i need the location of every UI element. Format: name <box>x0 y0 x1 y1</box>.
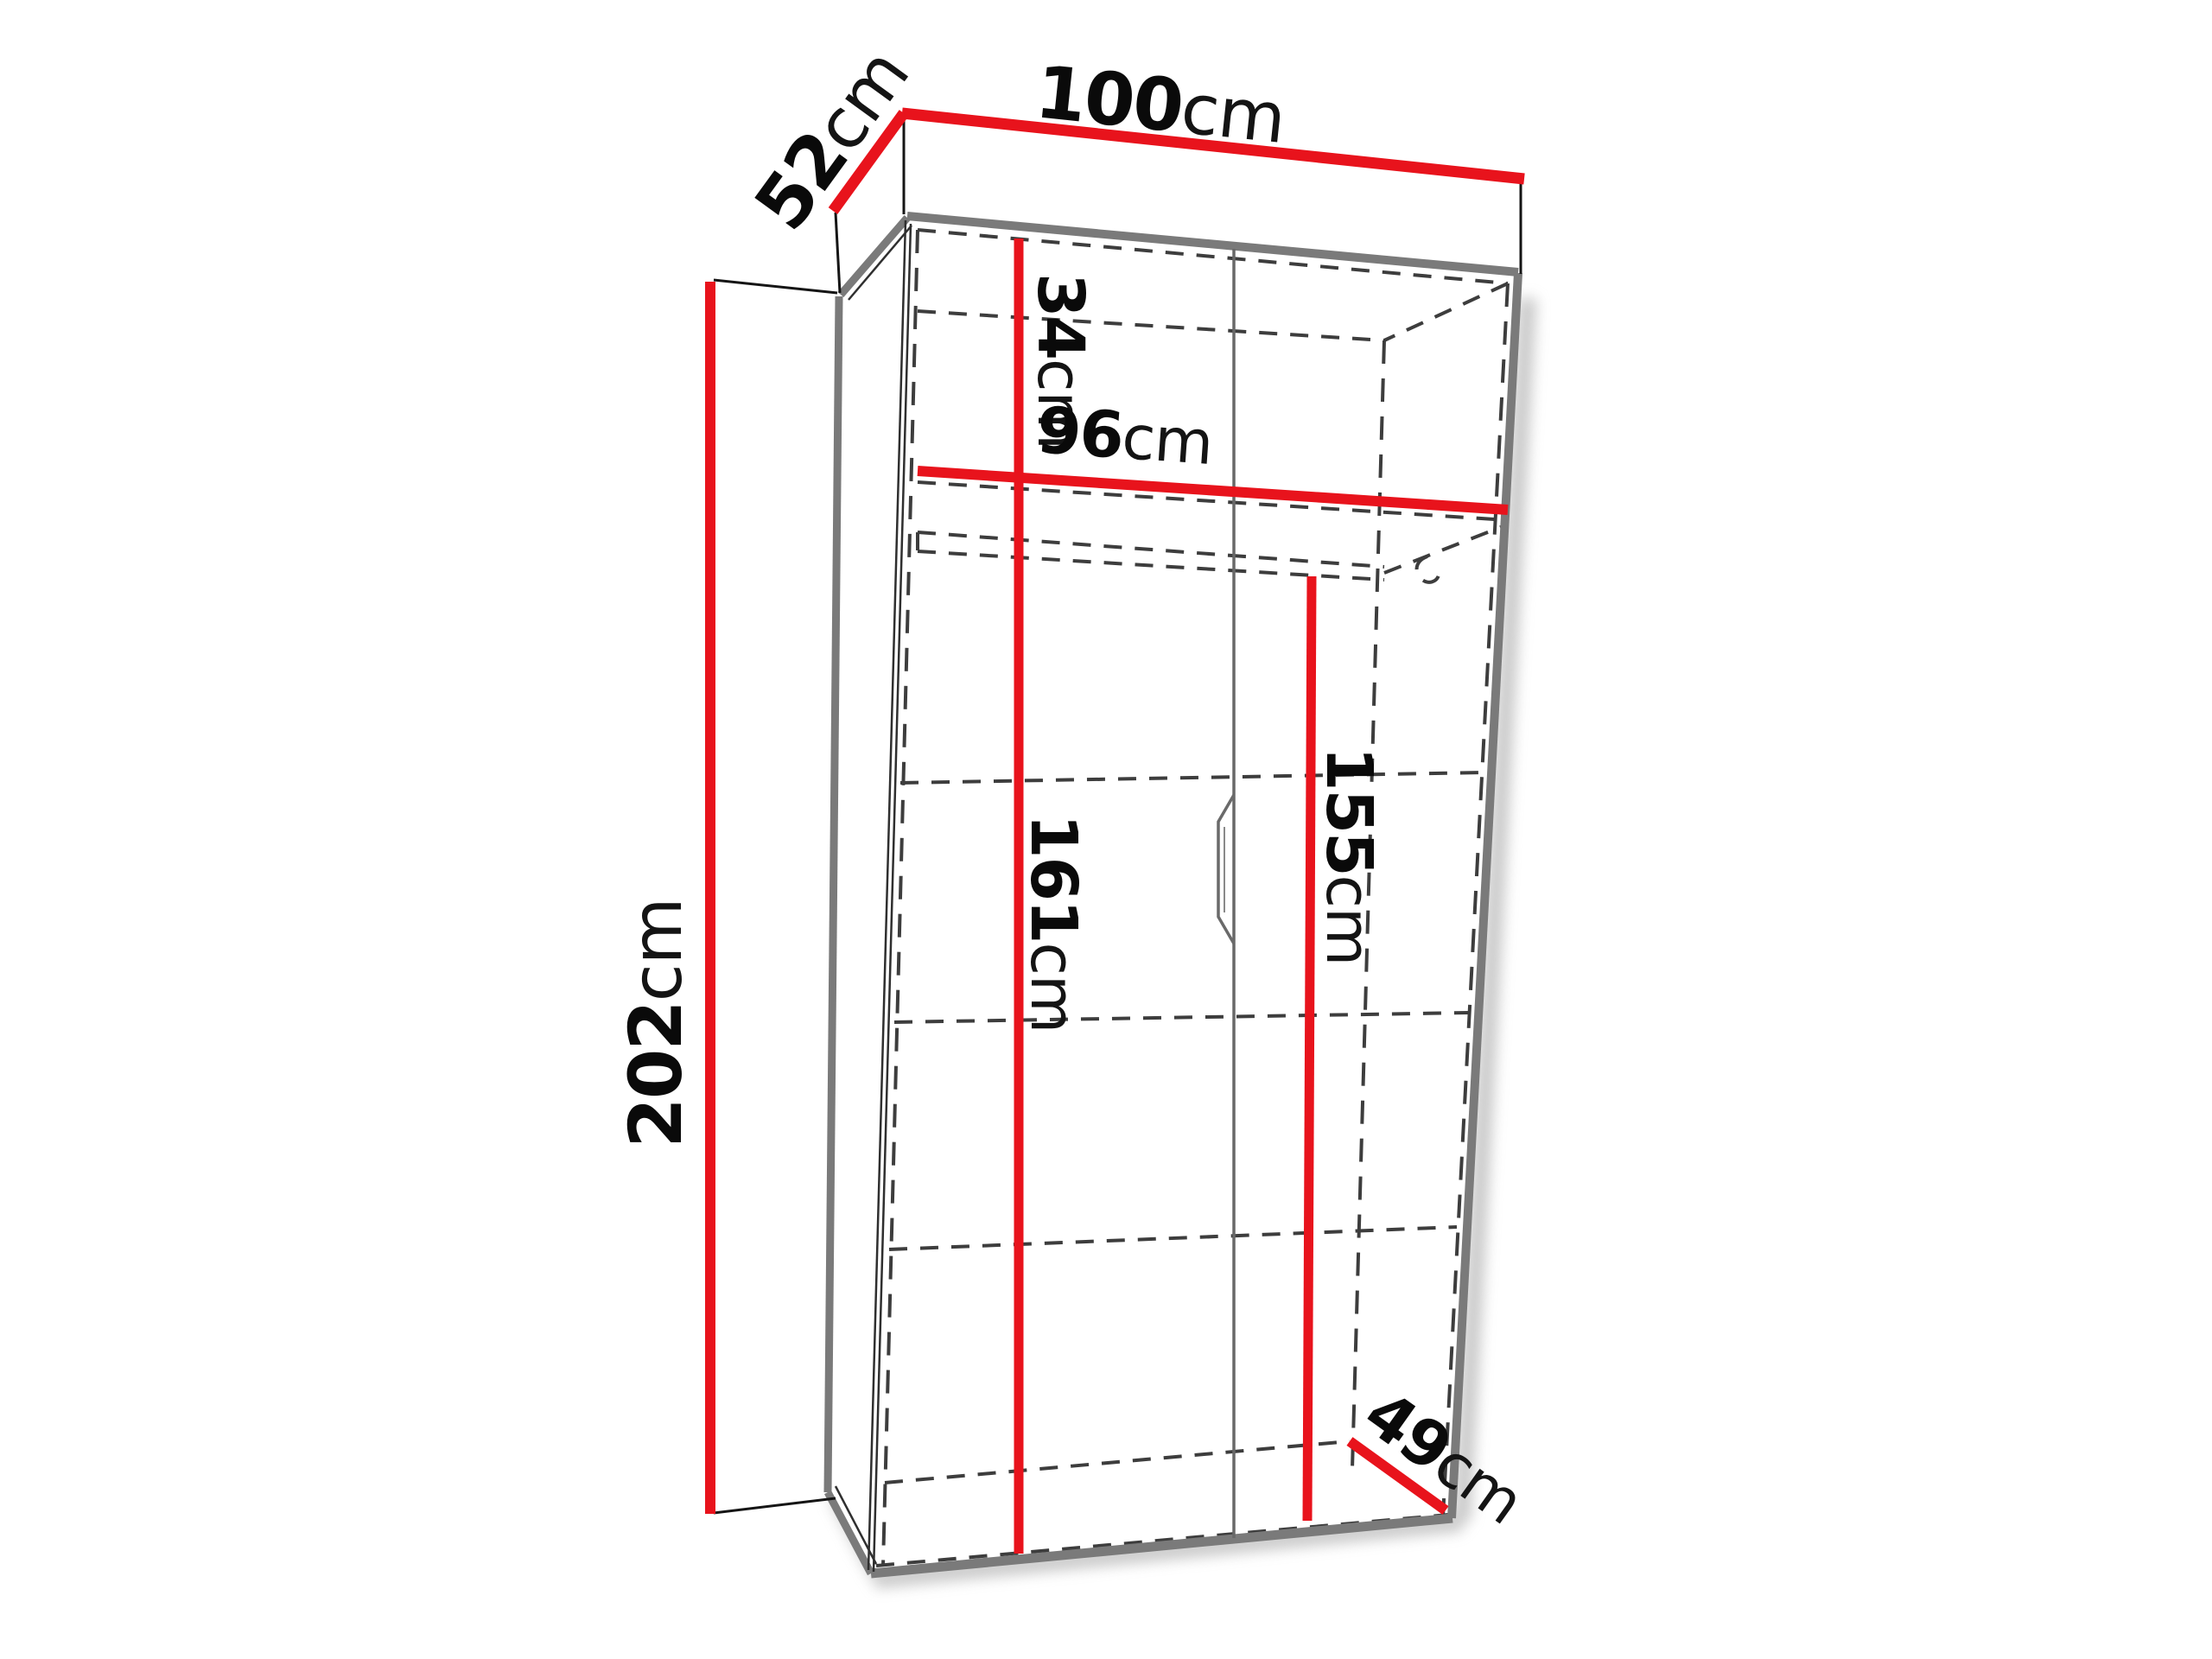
wardrobe-dimension-diagram: 100cm 52cm 202cm 34cm 96cm 161cm 155cm 4… <box>0 0 2212 1659</box>
height-top-witness-line <box>714 280 837 293</box>
dim-label-interior-width: 96cm <box>1034 393 1215 480</box>
witness-lines <box>714 213 840 1513</box>
dim-label-hanging-height: 155cm <box>1312 747 1386 965</box>
height-bottom-witness-line <box>714 1498 836 1513</box>
dim-label-height: 202cm <box>613 898 698 1147</box>
diagram-canvas: 100cm 52cm 202cm 34cm 96cm 161cm 155cm 4… <box>0 0 2212 1659</box>
depth-witness-line <box>836 213 840 293</box>
dim-label-left-interior-height: 161cm <box>1016 814 1090 1033</box>
dim-line-hanging-height-155 <box>1307 576 1312 1521</box>
dim-label-top-depth: 52cm <box>738 33 925 245</box>
